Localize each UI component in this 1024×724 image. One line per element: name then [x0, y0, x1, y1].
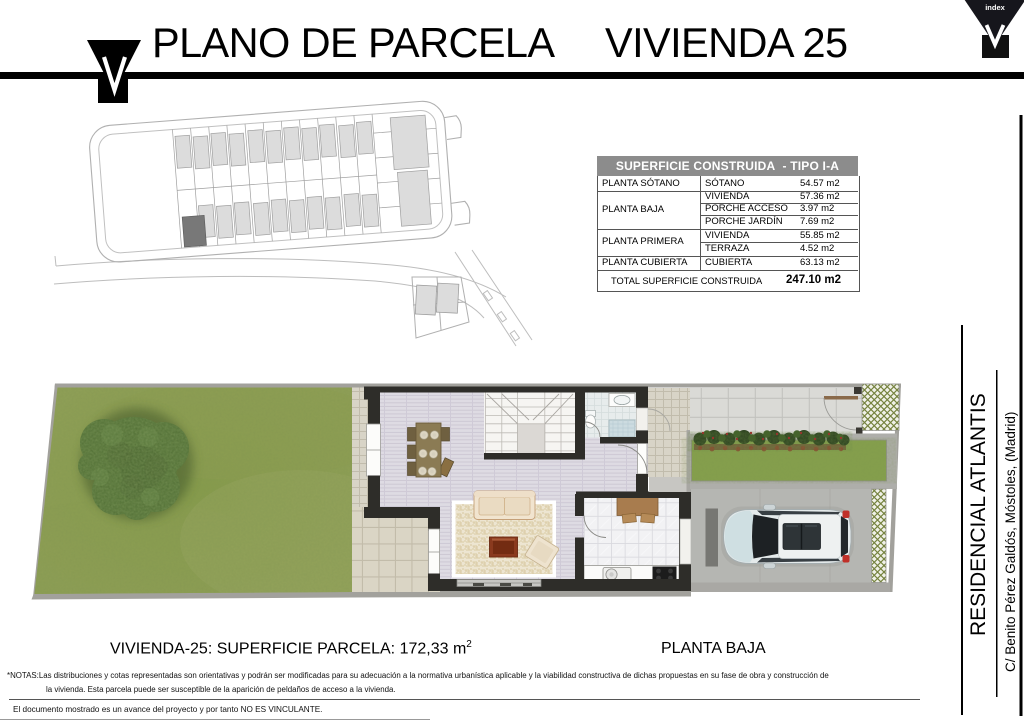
svg-text:index: index	[985, 3, 1005, 12]
svg-text:RESIDENCIAL ATLANTIS: RESIDENCIAL ATLANTIS	[967, 393, 990, 636]
svg-text:C/ Benito Pérez Galdós, Móstol: C/ Benito Pérez Galdós, Móstoles, (Madri…	[1003, 412, 1018, 672]
